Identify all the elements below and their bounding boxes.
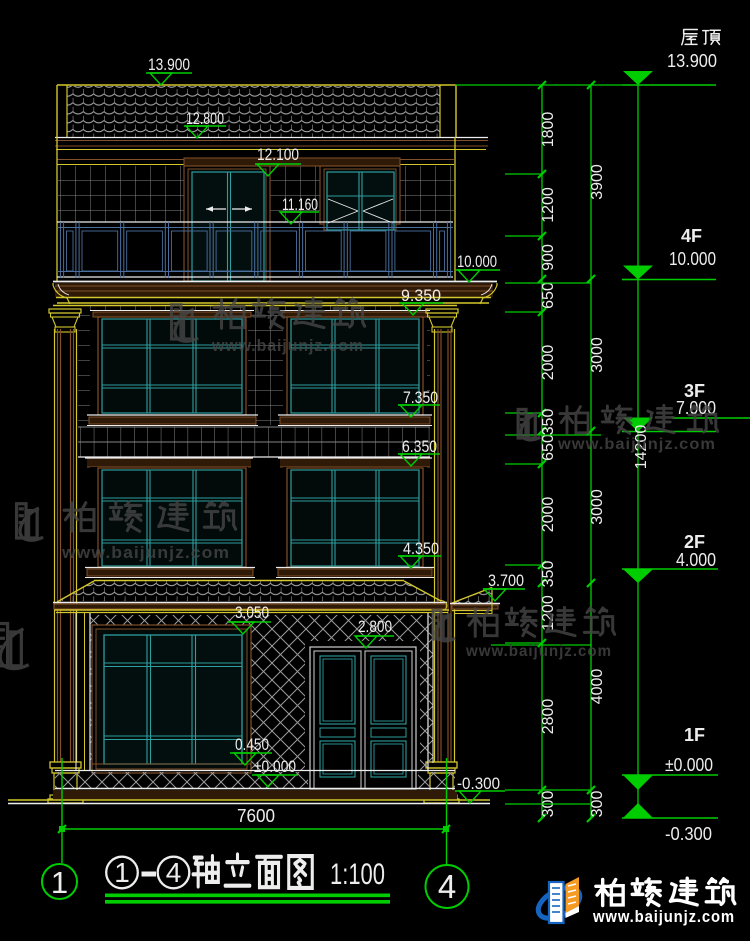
svg-text:1200: 1200	[540, 187, 557, 223]
svg-text:11.160: 11.160	[282, 195, 318, 214]
svg-text:3900: 3900	[589, 164, 606, 200]
svg-text:3.700: 3.700	[488, 571, 524, 590]
svg-text:13.900: 13.900	[148, 55, 190, 74]
svg-text:10.000: 10.000	[669, 249, 716, 269]
svg-text:1:100: 1:100	[330, 858, 385, 891]
svg-text:12.100: 12.100	[257, 145, 299, 164]
svg-text:2.800: 2.800	[358, 617, 392, 636]
svg-text:3000: 3000	[589, 337, 606, 373]
svg-text:350: 350	[540, 409, 557, 436]
svg-text:2000: 2000	[540, 345, 557, 381]
svg-text:7600: 7600	[237, 806, 275, 826]
svg-text:www.baijunjz.com: www.baijunjz.com	[592, 907, 735, 926]
svg-text:-0.300: -0.300	[457, 774, 500, 793]
svg-text:13.900: 13.900	[667, 51, 717, 71]
svg-text:0.450: 0.450	[235, 735, 269, 754]
svg-text:±0.000: ±0.000	[254, 757, 296, 776]
svg-text:4.350: 4.350	[403, 539, 439, 558]
svg-text:1: 1	[114, 857, 130, 888]
svg-text:-0.300: -0.300	[665, 824, 712, 844]
svg-text:7.350: 7.350	[403, 388, 438, 407]
svg-text:300: 300	[589, 791, 606, 818]
svg-text:650: 650	[540, 434, 557, 461]
svg-text:1800: 1800	[540, 112, 557, 148]
svg-text:www.baijunjz.com: www.baijunjz.com	[61, 543, 230, 562]
svg-text:4000: 4000	[589, 669, 606, 705]
svg-text:10.000: 10.000	[457, 252, 497, 271]
svg-text:6.350: 6.350	[402, 437, 437, 456]
svg-text:2F: 2F	[684, 532, 705, 552]
svg-text:2000: 2000	[540, 497, 557, 533]
svg-text:4.000: 4.000	[676, 550, 716, 570]
svg-text:3000: 3000	[589, 489, 606, 525]
svg-text:www.baijunjz.com: www.baijunjz.com	[557, 436, 716, 453]
svg-text:www.baijunjz.com: www.baijunjz.com	[465, 643, 612, 660]
svg-text:4: 4	[438, 868, 456, 905]
svg-text:650: 650	[540, 282, 557, 309]
svg-text:350: 350	[540, 561, 557, 588]
svg-text:9.350: 9.350	[401, 286, 441, 305]
svg-text:12.800: 12.800	[186, 109, 224, 128]
svg-text:1: 1	[51, 865, 68, 900]
svg-text:900: 900	[540, 244, 557, 271]
svg-text:1F: 1F	[684, 725, 705, 745]
svg-text:4F: 4F	[681, 226, 702, 246]
svg-text:±0.000: ±0.000	[665, 755, 713, 775]
svg-text:4: 4	[166, 857, 182, 888]
svg-text:www.baijunjz.com: www.baijunjz.com	[211, 336, 364, 355]
svg-text:2800: 2800	[540, 699, 557, 735]
svg-text:3.050: 3.050	[235, 603, 269, 622]
